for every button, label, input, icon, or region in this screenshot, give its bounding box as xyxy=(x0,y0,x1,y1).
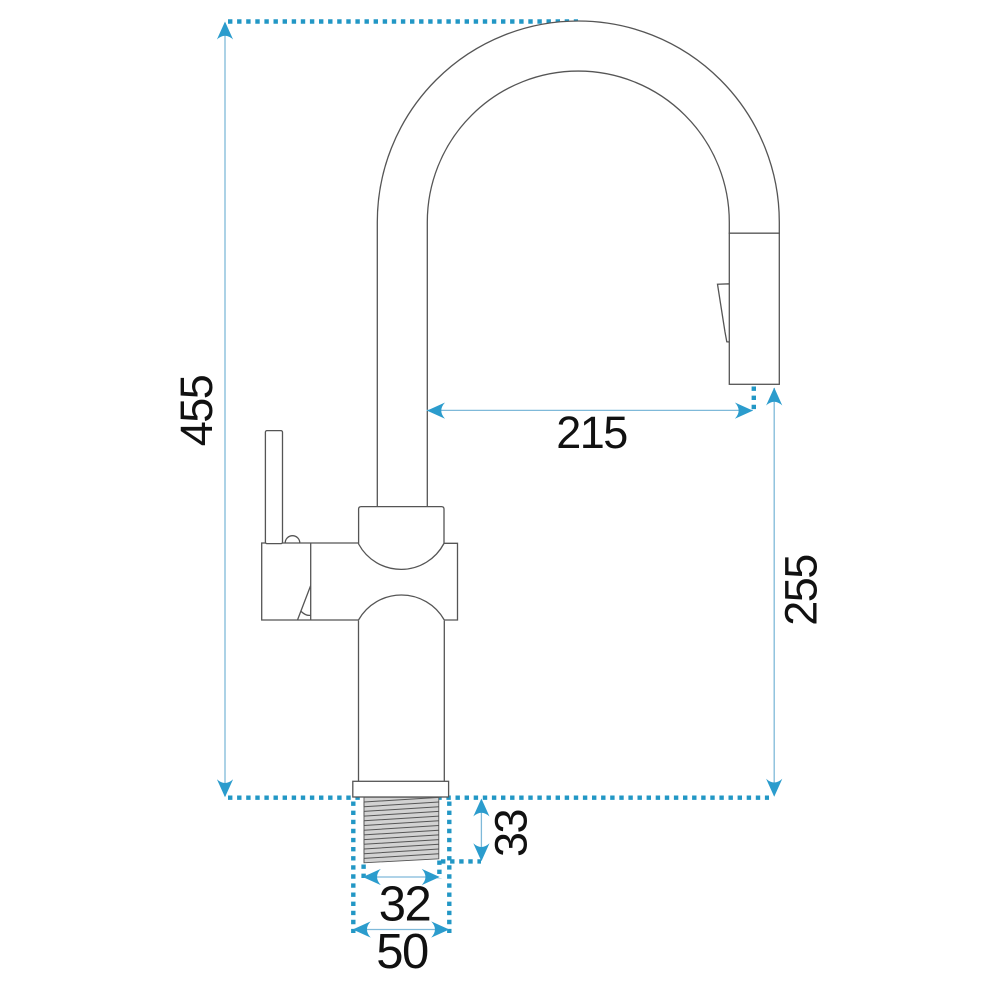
svg-text:215: 215 xyxy=(556,407,627,458)
svg-text:455: 455 xyxy=(171,375,222,446)
svg-text:255: 255 xyxy=(776,555,827,626)
svg-text:50: 50 xyxy=(376,925,428,979)
svg-text:33: 33 xyxy=(486,810,537,858)
svg-text:32: 32 xyxy=(379,878,431,932)
